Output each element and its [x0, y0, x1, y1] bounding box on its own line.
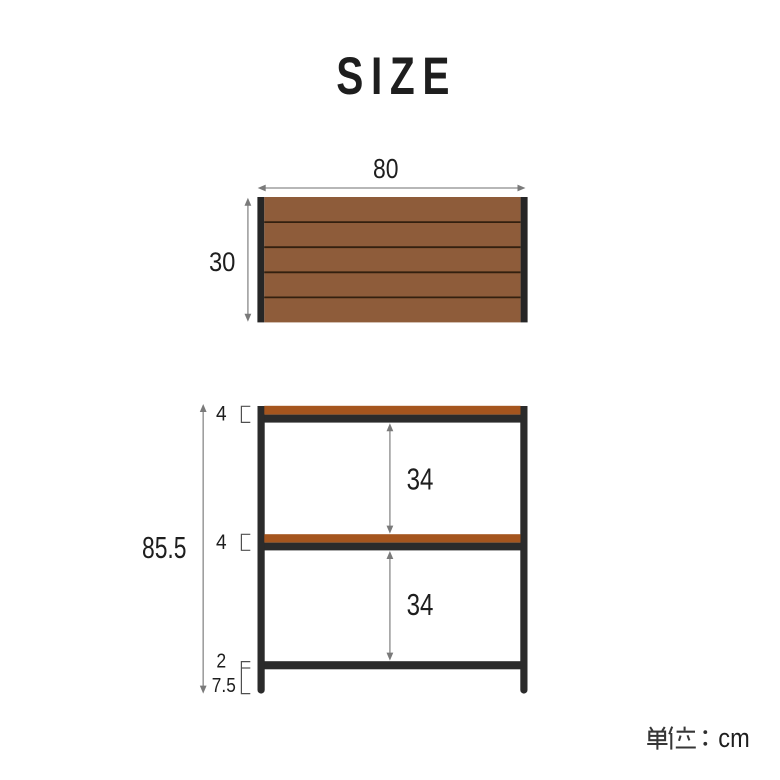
- svg-text:2: 2: [216, 651, 226, 673]
- svg-text:7.5: 7.5: [212, 675, 236, 697]
- svg-text:80: 80: [373, 153, 399, 184]
- svg-text:cm: cm: [718, 723, 749, 753]
- svg-text:34: 34: [407, 587, 434, 622]
- svg-text:34: 34: [407, 461, 434, 496]
- svg-text:4: 4: [216, 402, 227, 426]
- svg-text:30: 30: [209, 247, 236, 277]
- svg-text:4: 4: [216, 530, 227, 554]
- svg-text:SIZE: SIZE: [336, 47, 457, 106]
- svg-text:85.5: 85.5: [142, 530, 187, 565]
